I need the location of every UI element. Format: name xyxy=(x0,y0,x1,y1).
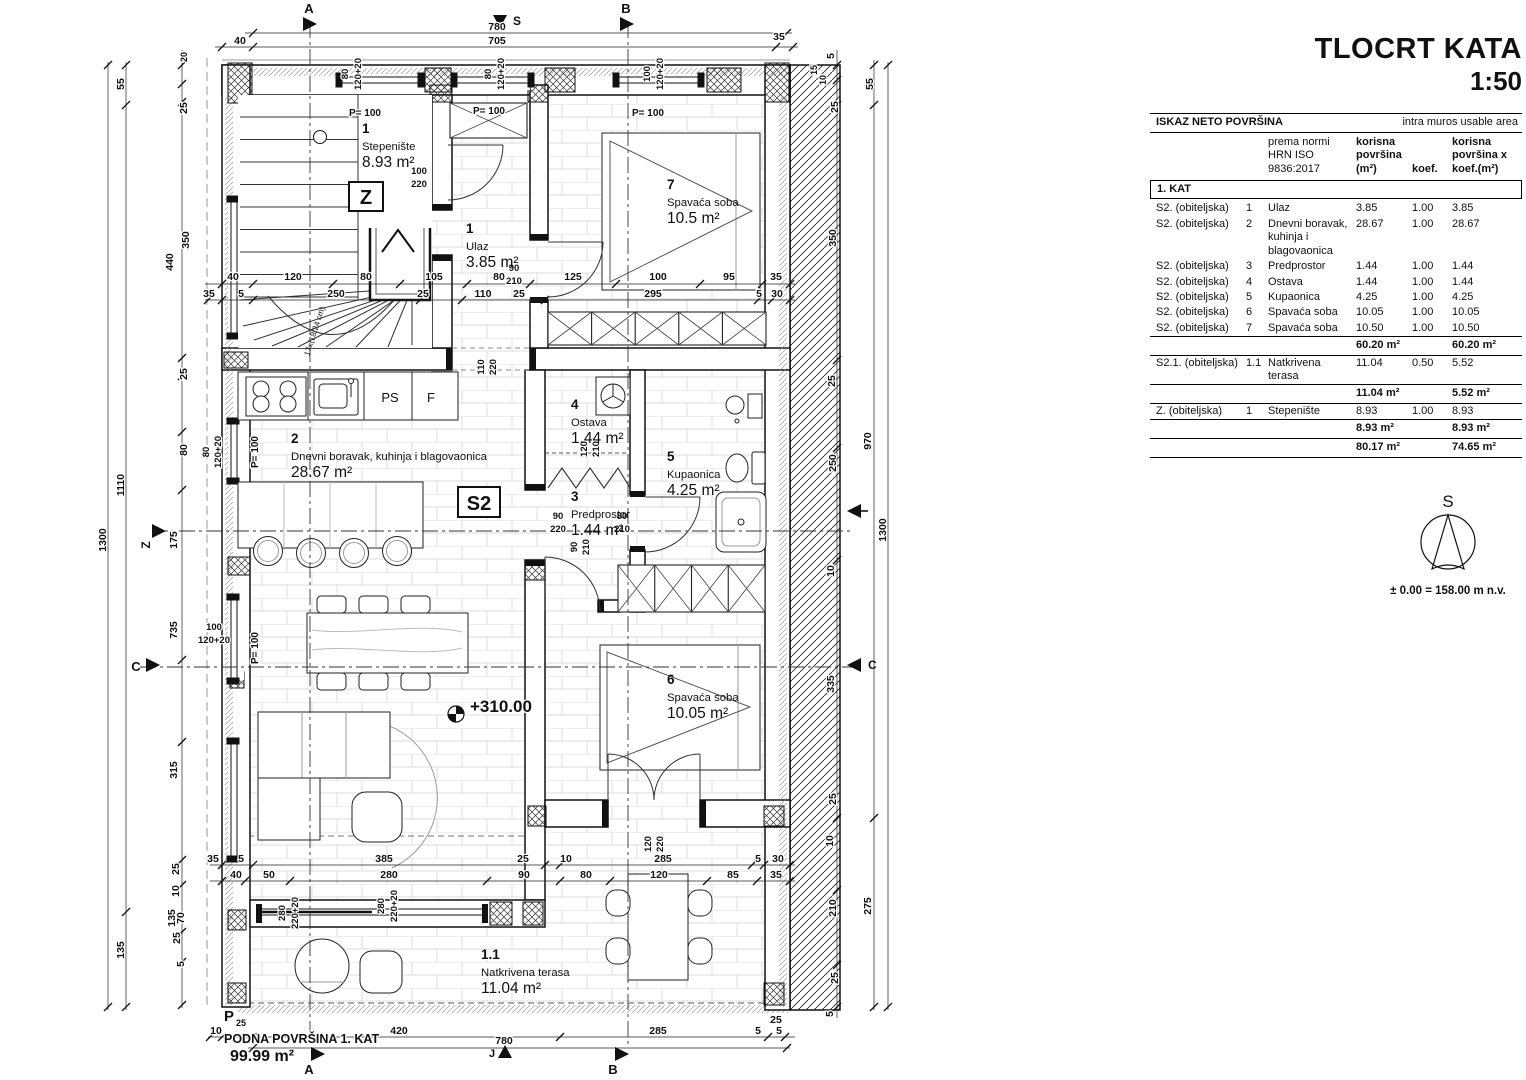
dim-label: P= 100 xyxy=(632,108,664,119)
room-label: 3.85 m² xyxy=(466,254,519,271)
dim-label: 350 xyxy=(827,229,839,247)
room-label: Predprostor xyxy=(571,509,630,521)
cell-koef: 1.00 xyxy=(1406,218,1446,258)
dim-label: 10 xyxy=(560,853,572,865)
svg-text:J: J xyxy=(489,1048,495,1060)
dim-label: 35 xyxy=(203,288,215,300)
dim-label: 90 xyxy=(553,511,564,522)
dim-label: 5 xyxy=(175,961,187,967)
dim-label: 90 xyxy=(569,542,580,553)
dim-label: 1110 xyxy=(115,474,127,496)
dim-label: 30 xyxy=(772,853,784,865)
dim-label: 5 xyxy=(755,1025,761,1037)
dim-label: 385 xyxy=(375,853,393,865)
dim-label: 10 xyxy=(170,885,182,897)
dim-label: 120 xyxy=(284,271,302,283)
room-label: 1.1 xyxy=(481,947,500,962)
dim-label: 220 xyxy=(488,359,499,375)
svg-text:C: C xyxy=(868,658,877,672)
apartment-unit-label: S2 xyxy=(467,493,491,515)
dim-label: 5 xyxy=(776,1025,782,1037)
dim-label: 280 xyxy=(277,905,288,921)
cell-num: 6 xyxy=(1240,306,1262,319)
staircase xyxy=(238,95,432,348)
cell-name: Spavaća soba xyxy=(1262,306,1350,319)
dim-label: 20 xyxy=(179,52,189,62)
drawing-scale: 1:50 xyxy=(1150,66,1522,97)
dim-label: 220+20 xyxy=(290,897,301,929)
dim-label: 25 xyxy=(513,288,525,300)
dim-label: 40 xyxy=(234,35,246,47)
cell-num: 1 xyxy=(1240,202,1262,215)
dim-label: 80 xyxy=(340,69,351,80)
neighbour-building-hatch xyxy=(790,65,840,1010)
cell-areax: 3.85 xyxy=(1446,202,1522,215)
room-label: 10.5 m² xyxy=(667,210,720,227)
room-label: 1.44 m² xyxy=(571,430,624,447)
dim-label: 5 xyxy=(238,288,244,300)
dim-label: 105 xyxy=(425,271,443,283)
p-mark-sub: 25 xyxy=(236,1018,246,1028)
dim-label: 120 xyxy=(643,836,654,852)
dim-label: 35 xyxy=(207,853,219,865)
dim-label: 705 xyxy=(488,35,506,47)
terrace-table xyxy=(628,874,688,980)
col-koef: koef. xyxy=(1406,163,1446,176)
cell-unit: S2. (obiteljska) xyxy=(1150,291,1240,304)
cell-areax: 1.44 xyxy=(1446,260,1522,273)
cell-num: 5 xyxy=(1240,291,1262,304)
title-and-table-panel: TLOCRT KATA 1:50 ISKAZ NETO POVRŠINA int… xyxy=(1150,34,1522,458)
dim-label: 35 xyxy=(773,31,785,43)
dim-label: 275 xyxy=(862,897,874,915)
room-label: Stepenište xyxy=(362,141,415,153)
cell-name: Dnevni boravak, kuhinja i blagovaonica xyxy=(1262,218,1350,258)
table-row: S2. (obiteljska)5Kupaonica4.251.004.25 xyxy=(1150,290,1522,305)
dim-label: 25 xyxy=(417,288,429,300)
room-label: 4.25 m² xyxy=(667,482,720,499)
dim-label: 110 xyxy=(476,359,487,374)
col-area: korisna površina (m²) xyxy=(1350,136,1406,176)
dim-label: P= 100 xyxy=(250,632,261,664)
subtotal1-area: 60.20 m² xyxy=(1350,339,1406,352)
floor-area-value: 99.99 m² xyxy=(230,1048,294,1065)
dim-label: 100 xyxy=(642,66,653,82)
cell-areax: 4.25 xyxy=(1446,291,1522,304)
stairs-row: Z. (obiteljska) 1 Stepenište 8.93 1.00 8… xyxy=(1150,404,1522,419)
room-label: Ostava xyxy=(571,417,608,429)
stove xyxy=(246,377,306,416)
cell-area: 28.67 xyxy=(1350,218,1406,258)
dim-label: 85 xyxy=(727,869,739,881)
dim-label: 350 xyxy=(180,231,192,249)
room-label: 5 xyxy=(667,449,675,464)
table-column-headers: prema normi HRN ISO 9836:2017 korisna po… xyxy=(1150,133,1522,178)
dim-label: 250 xyxy=(327,288,345,300)
svg-text:I: I xyxy=(859,509,871,512)
svg-text:B: B xyxy=(608,1062,617,1077)
svg-text:B: B xyxy=(621,1,630,16)
cell-name: Kupaonica xyxy=(1262,291,1350,304)
room-label: 10.05 m² xyxy=(667,705,728,722)
table-row: S2. (obiteljska)6Spavaća soba10.051.0010… xyxy=(1150,305,1522,320)
dim-label: 280 xyxy=(380,869,398,881)
dim-label: 250 xyxy=(827,454,839,472)
net-area-table: ISKAZ NETO POVRŠINA intra muros usable a… xyxy=(1150,113,1522,458)
dim-label: 90 xyxy=(518,869,530,881)
dim-label: 40 xyxy=(230,869,242,881)
total-row: 80.17 m² 74.65 m² xyxy=(1150,439,1522,458)
dim-label: 110 xyxy=(475,288,492,300)
dim-label: 10 xyxy=(818,75,828,85)
room-label: Spavaća soba xyxy=(667,692,739,704)
cell-koef: 1.00 xyxy=(1406,306,1446,319)
dim-label: 5 xyxy=(824,1011,836,1017)
room-label: 28.67 m² xyxy=(291,464,352,481)
page: Z S2 +310.00 A B S A B J Z C I C PS F 17… xyxy=(0,0,1526,1080)
dim-label: 120+20 xyxy=(496,58,507,90)
room-label: 8.93 m² xyxy=(362,154,415,171)
table-title: ISKAZ NETO POVRŠINA xyxy=(1156,116,1283,129)
dim-label: 220 xyxy=(550,524,566,535)
dim-label: 15 xyxy=(809,65,819,75)
floor-area-label: PODNA POVRŠINA 1. KAT xyxy=(224,1031,379,1046)
kitchen-ps-label: PS xyxy=(381,390,399,405)
dim-label: 5 xyxy=(238,853,244,865)
dim-label: 285 xyxy=(654,853,672,865)
room-label: 2 xyxy=(291,431,299,446)
dim-label: 80 xyxy=(580,869,592,881)
level-value: +310.00 xyxy=(470,697,532,716)
toilet xyxy=(726,454,748,482)
dim-label: P= 100 xyxy=(473,106,505,117)
dim-label: 220 xyxy=(655,836,666,852)
dim-label: 120 xyxy=(650,869,668,881)
dim-label: 440 xyxy=(164,253,176,271)
subtotal-row-2: 11.04 m² 5.52 m² xyxy=(1150,384,1522,403)
cell-areax: 10.05 xyxy=(1446,306,1522,319)
dim-label: 5 xyxy=(755,853,761,865)
col-norm: prema normi HRN ISO 9836:2017 xyxy=(1262,136,1350,176)
stair-unit-label: Z xyxy=(360,187,372,209)
dim-label: 25 xyxy=(829,972,841,984)
cell-area: 1.44 xyxy=(1350,276,1406,289)
room-label: 6 xyxy=(667,672,675,687)
dim-label: 780 xyxy=(495,1035,513,1047)
cell-area: 10.05 xyxy=(1350,306,1406,319)
room-label: Natkrivena terasa xyxy=(481,967,570,979)
dim-label: 335 xyxy=(825,675,837,693)
dim-label: 120+20 xyxy=(655,58,666,90)
dim-label: 5 xyxy=(825,53,837,59)
cell-area: 1.44 xyxy=(1350,260,1406,273)
dining-table xyxy=(307,613,468,673)
dim-label: 175 xyxy=(168,531,180,549)
north-compass: S ± 0.00 = 158.00 m n.v. xyxy=(1390,492,1506,597)
dim-label: 80 xyxy=(201,447,212,458)
cell-area: 10.50 xyxy=(1350,322,1406,335)
table-header: ISKAZ NETO POVRŠINA intra muros usable a… xyxy=(1150,113,1522,132)
col-empty2 xyxy=(1240,136,1262,176)
subtotal-row-1: 60.20 m² 60.20 m² xyxy=(1150,336,1522,355)
dim-label: 100 xyxy=(649,271,667,283)
dim-label: 220 xyxy=(411,179,427,190)
room-label: Spavaća soba xyxy=(667,197,739,209)
dim-label: 100 xyxy=(206,622,222,633)
dim-label: 315 xyxy=(168,761,180,779)
cell-areax: 10.50 xyxy=(1446,322,1522,335)
subtotal1-areax: 60.20 m² xyxy=(1446,339,1522,352)
dim-label: 25 xyxy=(171,932,183,944)
room-label: Kupaonica xyxy=(667,469,721,481)
dim-label: 780 xyxy=(488,21,506,33)
dim-label: 95 xyxy=(723,271,735,283)
terrace-side-table xyxy=(360,951,402,993)
room-label: 11.04 m² xyxy=(481,980,541,997)
cell-areax: 28.67 xyxy=(1446,218,1522,258)
dim-label: 5 xyxy=(756,288,762,300)
room-label: 4 xyxy=(571,397,579,412)
dim-label: 25 xyxy=(829,101,841,113)
sofa xyxy=(258,712,390,778)
terrace-row: S2.1. (obiteljska) 1.1 Natkrivena terasa… xyxy=(1150,356,1522,385)
dim-label: 135 xyxy=(115,941,127,959)
dim-label: 210 xyxy=(581,539,592,555)
cell-name: Ulaz xyxy=(1262,202,1350,215)
dim-label: 120+20 xyxy=(213,436,224,468)
cell-name: Spavaća soba xyxy=(1262,322,1350,335)
cell-name: Predprostor xyxy=(1262,260,1350,273)
cell-unit: S2. (obiteljska) xyxy=(1150,202,1240,215)
dim-label: 80 xyxy=(360,271,372,283)
dim-label: 25 xyxy=(827,793,839,805)
cell-area: 4.25 xyxy=(1350,291,1406,304)
table-section-header: 1. KAT xyxy=(1150,180,1522,199)
dim-label: 135 xyxy=(166,909,178,927)
subtotal-row-3: 8.93 m² 8.93 m² xyxy=(1150,419,1522,438)
dim-label: P= 100 xyxy=(250,436,261,468)
cell-area: 3.85 xyxy=(1350,202,1406,215)
dim-label: 1300 xyxy=(877,518,889,542)
compass-level-text: ± 0.00 = 158.00 m n.v. xyxy=(1390,585,1506,597)
dim-label: 25 xyxy=(826,375,838,387)
washbasin xyxy=(726,396,744,414)
dim-label: 285 xyxy=(649,1025,667,1037)
dim-label: 35 xyxy=(770,271,782,283)
dim-label: 970 xyxy=(862,432,874,450)
compass-north-label: S xyxy=(1442,492,1453,511)
room-label: 1 xyxy=(466,221,474,236)
dim-label: 210 xyxy=(827,899,839,917)
dim-label: 25 xyxy=(178,368,190,380)
cell-unit: S2. (obiteljska) xyxy=(1150,306,1240,319)
cell-koef: 1.00 xyxy=(1406,291,1446,304)
table-row: S2. (obiteljska)2Dnevni boravak, kuhinja… xyxy=(1150,217,1522,259)
cell-name: Ostava xyxy=(1262,276,1350,289)
svg-text:A: A xyxy=(304,1,314,16)
table-rows: S2. (obiteljska)1Ulaz3.851.003.85S2. (ob… xyxy=(1150,201,1522,336)
dim-label: 295 xyxy=(644,288,662,300)
room-label: Dnevni boravak, kuhinja i blagovaonica xyxy=(291,451,488,463)
dim-label: 80 xyxy=(178,444,190,456)
drawing-title: TLOCRT KATA xyxy=(1150,34,1522,64)
dim-label: 420 xyxy=(390,1025,408,1037)
table-row: S2. (obiteljska)3Predprostor1.441.001.44 xyxy=(1150,259,1522,274)
cell-koef: 1.00 xyxy=(1406,322,1446,335)
table-row: S2. (obiteljska)7Spavaća soba10.501.0010… xyxy=(1150,321,1522,336)
cell-koef: 1.00 xyxy=(1406,202,1446,215)
room-label: Ulaz xyxy=(466,241,489,253)
cell-unit: S2. (obiteljska) xyxy=(1150,276,1240,289)
cell-unit: S2. (obiteljska) xyxy=(1150,218,1240,258)
dim-label: 30 xyxy=(771,288,783,300)
dim-label: 120+20 xyxy=(198,635,230,646)
cell-num: 4 xyxy=(1240,276,1262,289)
p-mark: P xyxy=(224,1008,234,1025)
dim-label: 120+20 xyxy=(353,58,364,90)
dim-label: 735 xyxy=(168,621,180,639)
room-label: 3 xyxy=(571,489,579,504)
dim-label: 25 xyxy=(517,853,529,865)
dim-label: 210 xyxy=(506,276,522,287)
cell-num: 3 xyxy=(1240,260,1262,273)
cell-unit: S2. (obiteljska) xyxy=(1150,260,1240,273)
pouf xyxy=(352,792,402,842)
dim-label: 80 xyxy=(483,69,494,80)
room-label: 7 xyxy=(667,177,675,192)
cell-unit: S2. (obiteljska) xyxy=(1150,322,1240,335)
dim-label: 55 xyxy=(864,78,876,90)
dim-label: 55 xyxy=(115,78,127,90)
dim-label: P= 100 xyxy=(349,108,381,119)
svg-text:A: A xyxy=(304,1062,314,1077)
dim-label: 280 xyxy=(376,898,387,914)
cell-koef: 1.00 xyxy=(1406,276,1446,289)
dim-label: 40 xyxy=(227,271,239,283)
dim-label: 10 xyxy=(825,565,837,577)
svg-text:S: S xyxy=(513,14,521,28)
fridge-label: F xyxy=(427,390,435,405)
dim-label: 50 xyxy=(263,869,275,881)
dim-label: 25 xyxy=(178,102,190,114)
dim-label: 125 xyxy=(564,271,582,283)
dim-label: 35 xyxy=(770,869,782,881)
table-row: S2. (obiteljska)1Ulaz3.851.003.85 xyxy=(1150,201,1522,216)
cell-num: 2 xyxy=(1240,218,1262,258)
table-subtitle: intra muros usable area xyxy=(1402,116,1518,129)
cell-koef: 1.00 xyxy=(1406,260,1446,273)
dim-label: 10 xyxy=(210,1025,222,1037)
svg-text:C: C xyxy=(131,659,141,674)
room-label: 1 xyxy=(362,121,370,136)
cell-num: 7 xyxy=(1240,322,1262,335)
svg-text:Z: Z xyxy=(139,541,153,548)
dim-label: 1300 xyxy=(97,528,109,552)
dim-label: 220+20 xyxy=(389,890,400,922)
terrace-armchair xyxy=(295,939,349,993)
dim-label: 25 xyxy=(170,863,182,875)
dim-label: 80 xyxy=(493,271,505,283)
table-row: S2. (obiteljska)4Ostava1.441.001.44 xyxy=(1150,275,1522,290)
col-areax: korisna površina x koef.(m²) xyxy=(1446,136,1522,176)
room-label: 1.44 m² xyxy=(571,522,624,539)
cell-areax: 1.44 xyxy=(1446,276,1522,289)
col-empty1 xyxy=(1150,136,1240,176)
dim-label: 10 xyxy=(824,835,836,847)
